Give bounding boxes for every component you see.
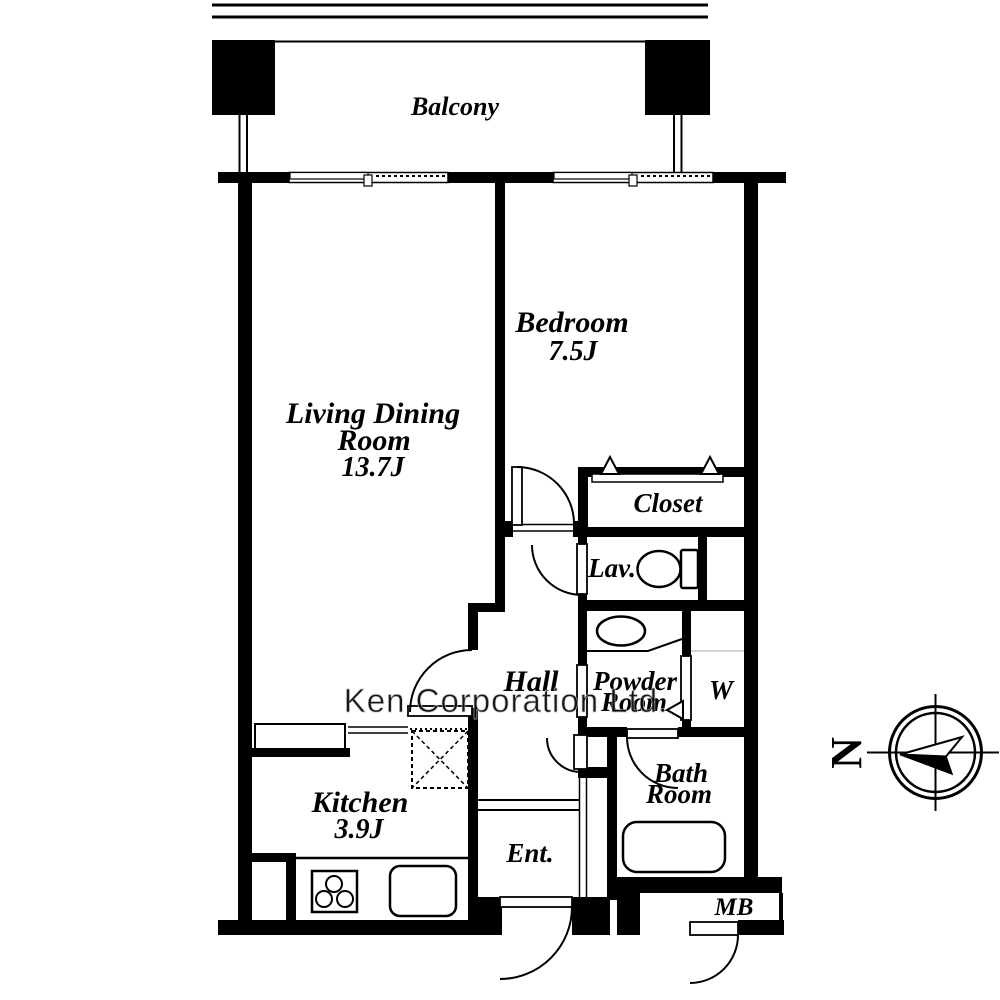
wall-right: [744, 172, 758, 892]
wall-under-lav: [578, 600, 744, 611]
bedroom-size: 7.5J: [549, 336, 599, 367]
kitchen-size: 3.9J: [334, 814, 385, 845]
watermark-text: Ken Corporation Ltd.: [344, 682, 669, 719]
wall-ent-corner: [468, 897, 502, 935]
compass: N: [822, 694, 999, 811]
bath-room-label-line2: Room: [645, 779, 712, 809]
entrance-step: [478, 777, 587, 897]
floor-plan-page: Balcony Living Dining Room 13.7J Bedroom…: [0, 0, 1000, 1000]
walls: [218, 172, 786, 935]
stove: [312, 871, 357, 912]
closet-label: Closet: [633, 488, 704, 518]
powder-sink: [587, 617, 682, 652]
toilet: [638, 550, 699, 588]
wall-bottom: [218, 920, 502, 935]
toilet-tank: [681, 550, 698, 588]
closet-bracket-right: [701, 457, 719, 474]
bathtub: [623, 822, 725, 872]
closet-bracket-left: [601, 457, 619, 474]
balcony-pillar-left: [212, 40, 275, 115]
wall-left: [238, 172, 252, 935]
wall-mb-top: [617, 877, 782, 893]
wall-hall-jog: [468, 603, 505, 612]
wall-divider: [495, 183, 505, 612]
bedroom-label: Bedroom: [514, 306, 628, 339]
window-bedroom: [553, 173, 713, 187]
kitchen-counter-upper: [255, 724, 345, 750]
kitchen-sink: [390, 866, 456, 916]
bedroom-door: [512, 467, 574, 525]
washer-label: W: [709, 675, 735, 705]
meter-box-label: MB: [714, 894, 754, 921]
balcony-label: Balcony: [410, 92, 500, 121]
top-boundary-lines: [212, 5, 708, 17]
compass-needle-white: [900, 737, 962, 757]
entrance-label: Ent.: [505, 838, 553, 868]
living-dining-size: 13.7J: [342, 452, 406, 483]
floor-plan-svg: Balcony Living Dining Room 13.7J Bedroom…: [0, 0, 1000, 1000]
refrigerator-space: [412, 731, 468, 788]
entrance-door: [500, 897, 572, 979]
folding-door-arrow: [667, 701, 683, 719]
meter-box-door: [690, 922, 738, 983]
lavatory-label: Lav.: [587, 553, 636, 583]
window-living: [289, 173, 448, 187]
compass-needle-black: [900, 755, 952, 775]
balcony-pillar-right: [645, 40, 710, 115]
wall-lav-right: [698, 537, 707, 607]
compass-north-label: N: [822, 737, 871, 769]
hall-closet-door: [547, 735, 587, 772]
wall-bath-left: [607, 730, 617, 900]
lavatory-door: [532, 544, 587, 595]
closet-hanger-rod: [592, 474, 723, 482]
wall-closet-bottom: [580, 527, 744, 537]
